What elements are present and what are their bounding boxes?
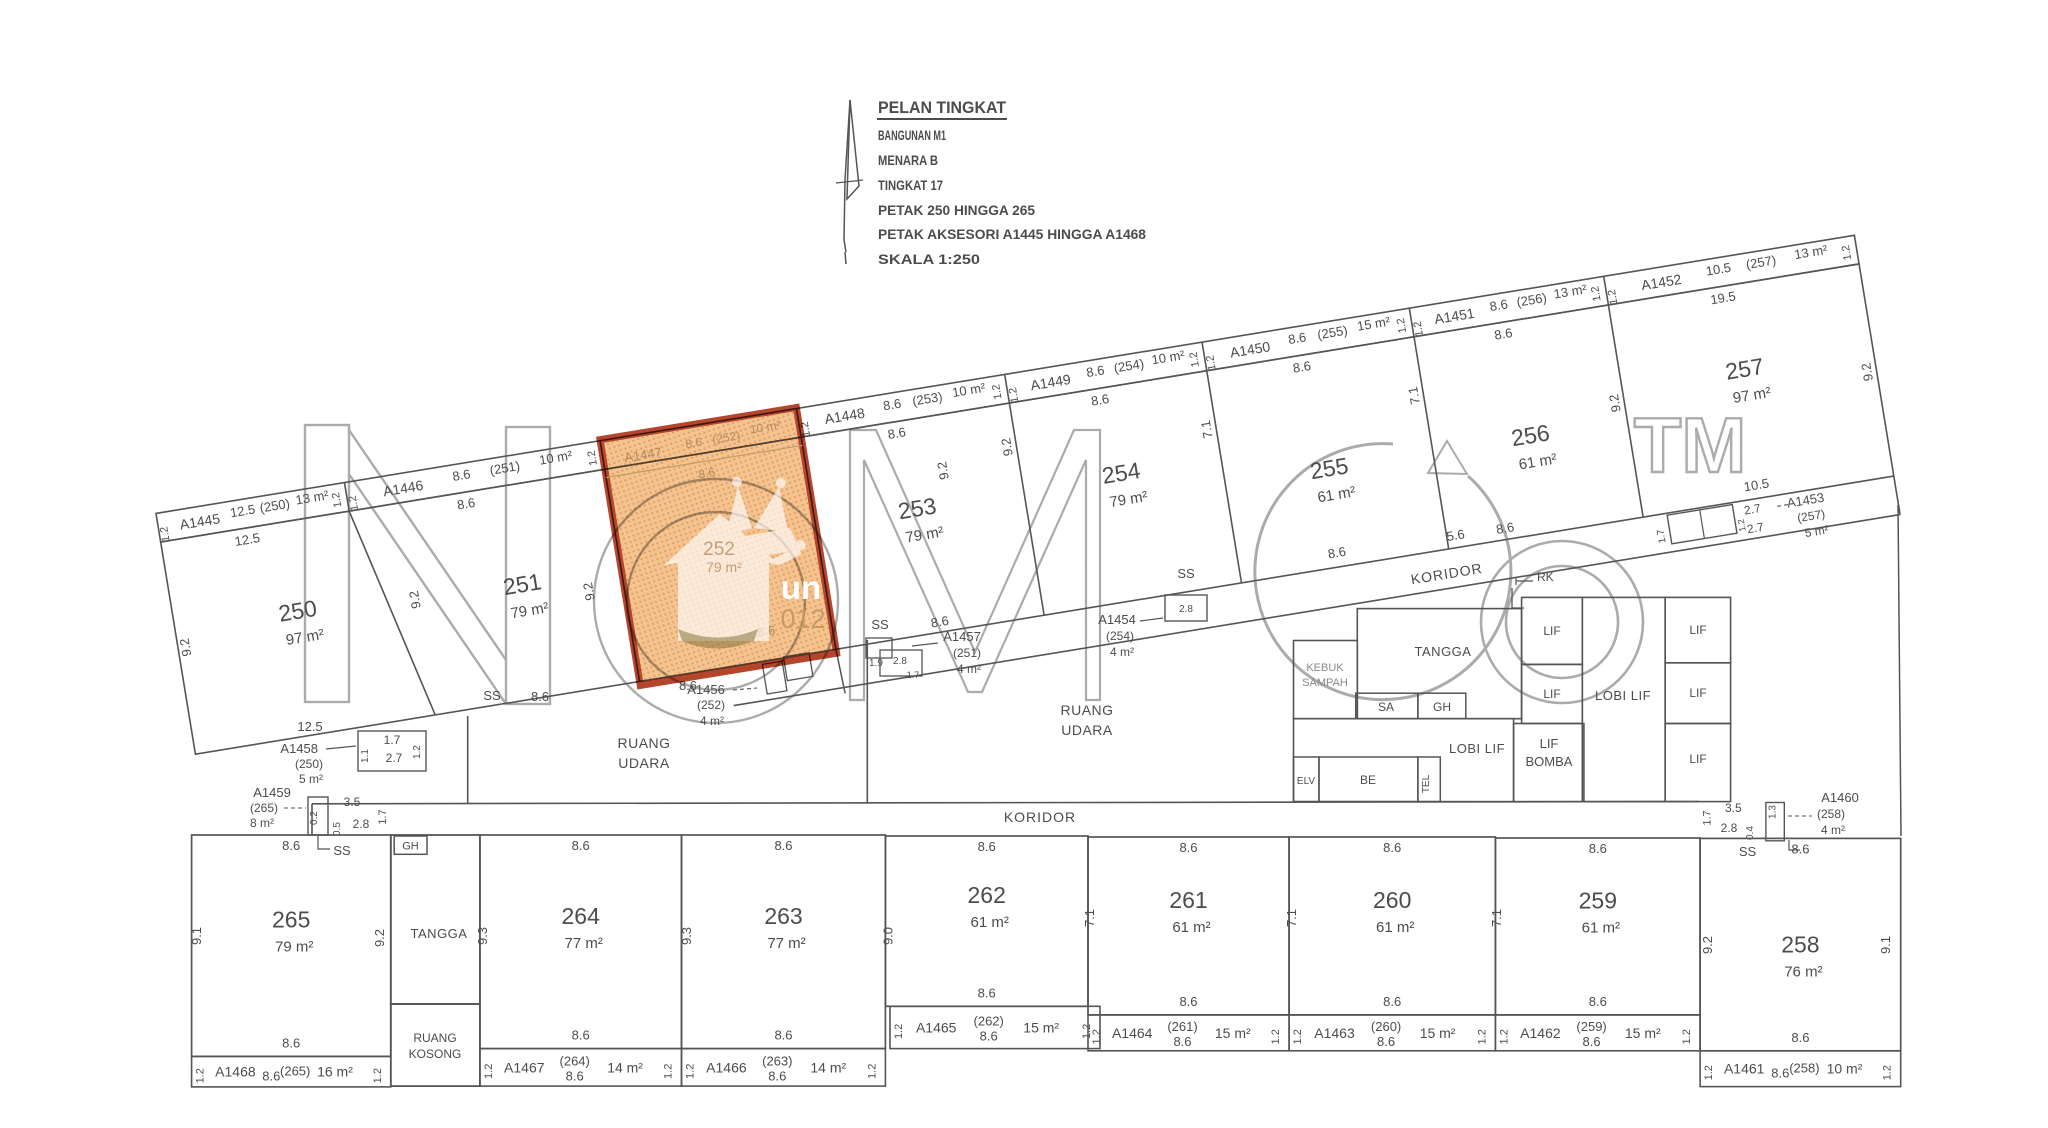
svg-text:LIF: LIF bbox=[1540, 736, 1559, 751]
svg-text:A1458: A1458 bbox=[280, 741, 318, 756]
svg-text:15 m²: 15 m² bbox=[1215, 1025, 1251, 1041]
svg-text:258: 258 bbox=[1781, 932, 1819, 958]
svg-text:8.6: 8.6 bbox=[1771, 1066, 1789, 1081]
svg-text:16 m²: 16 m² bbox=[317, 1064, 353, 1080]
svg-text:8.6: 8.6 bbox=[697, 465, 716, 482]
svg-text:7.1: 7.1 bbox=[1082, 909, 1097, 927]
svg-text:1.7: 1.7 bbox=[1655, 528, 1668, 544]
svg-text:1.2: 1.2 bbox=[1188, 351, 1202, 368]
svg-text:1.2: 1.2 bbox=[1204, 354, 1218, 371]
svg-text:15 m²: 15 m² bbox=[1420, 1025, 1456, 1041]
svg-text:1.7: 1.7 bbox=[377, 809, 389, 824]
svg-text:8.6: 8.6 bbox=[1495, 519, 1515, 537]
svg-text:0.4: 0.4 bbox=[1745, 826, 1756, 840]
svg-text:1.2: 1.2 bbox=[1882, 1065, 1894, 1080]
svg-text:A1461: A1461 bbox=[1724, 1061, 1765, 1077]
svg-text:8.6: 8.6 bbox=[978, 985, 996, 1000]
svg-text:2.8: 2.8 bbox=[1721, 821, 1738, 835]
svg-text:A1457: A1457 bbox=[943, 629, 981, 644]
svg-text:8.6: 8.6 bbox=[1085, 362, 1105, 380]
svg-text:TM: TM bbox=[1634, 401, 1747, 489]
svg-text:A1463: A1463 bbox=[1314, 1025, 1355, 1041]
svg-text:KORIDOR: KORIDOR bbox=[1004, 809, 1076, 825]
svg-text:8.6: 8.6 bbox=[1489, 296, 1509, 314]
svg-text:8.6: 8.6 bbox=[282, 838, 300, 853]
svg-text:BANGUNAN M1: BANGUNAN M1 bbox=[878, 127, 946, 143]
svg-text:(265): (265) bbox=[250, 801, 278, 815]
svg-text:1.2: 1.2 bbox=[866, 1064, 878, 1079]
svg-text:3.5: 3.5 bbox=[344, 795, 361, 809]
svg-text:8.6: 8.6 bbox=[531, 689, 549, 704]
svg-text:1.2: 1.2 bbox=[483, 1064, 495, 1079]
svg-text:1.2: 1.2 bbox=[1270, 1029, 1282, 1044]
svg-text:(258): (258) bbox=[1789, 1061, 1819, 1076]
svg-text:1.2: 1.2 bbox=[1606, 289, 1620, 306]
svg-text:8.6: 8.6 bbox=[1090, 391, 1110, 409]
svg-text:SS: SS bbox=[871, 617, 889, 632]
svg-text:9.0: 9.0 bbox=[881, 927, 896, 945]
svg-text:14 m²: 14 m² bbox=[607, 1059, 643, 1075]
svg-text:A1466: A1466 bbox=[706, 1059, 747, 1075]
svg-text:A1468: A1468 bbox=[215, 1064, 256, 1080]
svg-text:4 m²: 4 m² bbox=[957, 662, 981, 676]
svg-text:7.1: 7.1 bbox=[1284, 909, 1299, 927]
svg-text:8.6: 8.6 bbox=[1173, 1034, 1191, 1049]
svg-text:1.2: 1.2 bbox=[372, 1068, 384, 1083]
svg-text:8.6: 8.6 bbox=[262, 1069, 280, 1084]
svg-text:(262): (262) bbox=[974, 1013, 1004, 1028]
svg-text:0.2: 0.2 bbox=[309, 811, 320, 825]
svg-text:76 m²: 76 m² bbox=[1784, 964, 1822, 981]
svg-text:SKALA 1:250: SKALA 1:250 bbox=[878, 251, 980, 267]
svg-text:8.6: 8.6 bbox=[1179, 994, 1197, 1009]
svg-text:1.2: 1.2 bbox=[158, 526, 172, 543]
svg-text:012: 012 bbox=[780, 604, 825, 634]
svg-text:8.6: 8.6 bbox=[572, 1028, 590, 1043]
svg-text:PELAN TINGKAT: PELAN TINGKAT bbox=[878, 99, 1006, 117]
svg-text:LOBI LIF: LOBI LIF bbox=[1595, 688, 1651, 703]
svg-text:15 m²: 15 m² bbox=[1023, 1019, 1059, 1035]
svg-text:1.7: 1.7 bbox=[1702, 810, 1714, 825]
svg-text:12.5: 12.5 bbox=[297, 719, 322, 734]
svg-text:LIF: LIF bbox=[1689, 752, 1706, 766]
svg-text:8.6: 8.6 bbox=[1791, 841, 1809, 856]
svg-text:8.6: 8.6 bbox=[572, 838, 590, 853]
svg-text:263: 263 bbox=[764, 903, 802, 929]
svg-text:2.7: 2.7 bbox=[386, 751, 403, 765]
svg-text:A1454: A1454 bbox=[1098, 612, 1136, 627]
svg-text:252: 252 bbox=[703, 539, 735, 560]
svg-text:264: 264 bbox=[562, 903, 601, 929]
svg-text:SS: SS bbox=[1739, 844, 1757, 859]
svg-text:(260): (260) bbox=[1371, 1019, 1401, 1034]
svg-text:265: 265 bbox=[272, 907, 310, 933]
svg-text:1.2: 1.2 bbox=[990, 383, 1004, 400]
svg-text:(259): (259) bbox=[1576, 1019, 1606, 1034]
svg-text:1.2: 1.2 bbox=[1476, 1029, 1488, 1044]
svg-text:A1467: A1467 bbox=[504, 1059, 545, 1075]
svg-text:A1464: A1464 bbox=[1112, 1025, 1153, 1041]
svg-text:1.2: 1.2 bbox=[685, 1064, 697, 1079]
svg-text:RK: RK bbox=[1537, 570, 1554, 584]
svg-text:261: 261 bbox=[1169, 887, 1207, 913]
svg-text:8.6: 8.6 bbox=[451, 466, 471, 484]
svg-text:7.1: 7.1 bbox=[1489, 909, 1504, 927]
svg-text:9.2: 9.2 bbox=[1858, 362, 1876, 382]
svg-text:8.6: 8.6 bbox=[930, 613, 950, 631]
svg-text:1.2: 1.2 bbox=[1736, 518, 1748, 532]
svg-text:UDARA: UDARA bbox=[1061, 722, 1113, 738]
svg-text:77 m²: 77 m² bbox=[565, 935, 603, 952]
svg-text:(264): (264) bbox=[560, 1053, 590, 1068]
svg-text:1.2: 1.2 bbox=[1840, 244, 1854, 261]
svg-text:8.6: 8.6 bbox=[1383, 994, 1401, 1009]
svg-text:4 m²: 4 m² bbox=[700, 714, 724, 728]
svg-text:2.8: 2.8 bbox=[353, 817, 370, 831]
svg-text:PETAK AKSESORI A1445 HINGGA A1: PETAK AKSESORI A1445 HINGGA A1468 bbox=[878, 226, 1146, 242]
svg-text:8.6: 8.6 bbox=[1287, 329, 1307, 347]
svg-text:5 m²: 5 m² bbox=[299, 772, 323, 786]
svg-text:79 m²: 79 m² bbox=[706, 559, 742, 575]
svg-text:LIF: LIF bbox=[1689, 623, 1706, 637]
svg-text:260: 260 bbox=[1373, 887, 1411, 913]
svg-text:61 m²: 61 m² bbox=[1172, 919, 1210, 936]
svg-text:1.7: 1.7 bbox=[907, 670, 920, 680]
svg-text:1.2: 1.2 bbox=[1681, 1029, 1693, 1044]
svg-text:8.6: 8.6 bbox=[1589, 841, 1607, 856]
svg-text:TANGGA: TANGGA bbox=[1415, 644, 1472, 659]
svg-text:(261): (261) bbox=[1167, 1019, 1197, 1034]
svg-text:1.1: 1.1 bbox=[360, 749, 371, 763]
svg-text:14 m²: 14 m² bbox=[810, 1059, 846, 1075]
svg-text:8.6: 8.6 bbox=[282, 1035, 300, 1050]
svg-text:SA: SA bbox=[1378, 700, 1394, 714]
svg-text:SS: SS bbox=[333, 843, 351, 858]
svg-text:LIF: LIF bbox=[1543, 624, 1560, 638]
svg-text:8.6: 8.6 bbox=[456, 495, 476, 513]
svg-text:9.1: 9.1 bbox=[189, 927, 204, 945]
svg-text:(265): (265) bbox=[280, 1064, 310, 1079]
svg-text:SAMPAH: SAMPAH bbox=[1302, 677, 1348, 689]
svg-text:1.2: 1.2 bbox=[195, 1068, 207, 1083]
svg-text:2.7: 2.7 bbox=[1746, 520, 1765, 537]
svg-text:1.2: 1.2 bbox=[586, 450, 600, 467]
svg-text:(250): (250) bbox=[295, 757, 323, 771]
svg-text:1.2: 1.2 bbox=[1498, 1029, 1510, 1044]
svg-text:1.2: 1.2 bbox=[1091, 1029, 1103, 1044]
svg-text:79 m²: 79 m² bbox=[275, 939, 313, 956]
svg-text:8.6: 8.6 bbox=[774, 838, 792, 853]
svg-text:77 m²: 77 m² bbox=[767, 935, 805, 952]
svg-text:1.9: 1.9 bbox=[869, 658, 883, 669]
svg-text:BOMBA: BOMBA bbox=[1526, 754, 1573, 769]
svg-text:TINGKAT 17: TINGKAT 17 bbox=[878, 177, 943, 193]
svg-text:9.2: 9.2 bbox=[1606, 393, 1624, 413]
svg-text:BE: BE bbox=[1360, 773, 1376, 787]
svg-text:9.2: 9.2 bbox=[934, 461, 952, 481]
svg-text:1.2: 1.2 bbox=[347, 495, 361, 512]
svg-text:1.2: 1.2 bbox=[1395, 317, 1409, 334]
svg-text:10 m²: 10 m² bbox=[1827, 1061, 1863, 1077]
svg-text:8.6: 8.6 bbox=[1583, 1034, 1601, 1049]
svg-text:SS: SS bbox=[1177, 566, 1195, 581]
svg-text:(251): (251) bbox=[953, 646, 981, 660]
svg-text:1.7: 1.7 bbox=[384, 733, 401, 747]
svg-text:15 m²: 15 m² bbox=[1625, 1025, 1661, 1041]
svg-text:8.6: 8.6 bbox=[566, 1068, 584, 1083]
svg-text:8.6: 8.6 bbox=[1589, 994, 1607, 1009]
svg-text:LOBI LIF: LOBI LIF bbox=[1449, 741, 1505, 756]
svg-text:1.2: 1.2 bbox=[1292, 1029, 1304, 1044]
svg-text:(258): (258) bbox=[1817, 807, 1845, 821]
svg-text:8.6: 8.6 bbox=[980, 1028, 998, 1043]
svg-text:A1462: A1462 bbox=[1520, 1025, 1561, 1041]
svg-text:9.2: 9.2 bbox=[372, 929, 387, 947]
svg-text:9.1: 9.1 bbox=[1878, 936, 1893, 954]
svg-text:8 m²: 8 m² bbox=[250, 816, 274, 830]
svg-text:1.2: 1.2 bbox=[330, 491, 344, 508]
svg-text:KEBUK: KEBUK bbox=[1306, 662, 1344, 674]
svg-text:262: 262 bbox=[968, 882, 1006, 908]
svg-text:A1459: A1459 bbox=[253, 785, 291, 800]
svg-text:61 m²: 61 m² bbox=[971, 914, 1009, 931]
svg-text:4 m²: 4 m² bbox=[1110, 645, 1134, 659]
svg-text:un: un bbox=[781, 569, 821, 606]
svg-text:A1460: A1460 bbox=[1821, 790, 1859, 805]
svg-text:4 m²: 4 m² bbox=[1821, 823, 1845, 837]
svg-text:9.2: 9.2 bbox=[998, 437, 1016, 457]
svg-text:A1465: A1465 bbox=[916, 1019, 957, 1035]
svg-text:8.6: 8.6 bbox=[1327, 544, 1347, 562]
svg-text:1.2: 1.2 bbox=[663, 1064, 675, 1079]
svg-text:LIF: LIF bbox=[1689, 686, 1706, 700]
svg-text:8.6: 8.6 bbox=[1493, 325, 1513, 343]
svg-text:(252): (252) bbox=[697, 698, 725, 712]
svg-text:TEL: TEL bbox=[1421, 774, 1432, 793]
svg-text:1.2: 1.2 bbox=[1703, 1065, 1715, 1080]
svg-text:PETAK 250 HINGGA 265: PETAK 250 HINGGA 265 bbox=[878, 202, 1035, 218]
svg-text:(263): (263) bbox=[762, 1053, 792, 1068]
svg-text:8.6: 8.6 bbox=[1377, 1034, 1395, 1049]
svg-text:2.8: 2.8 bbox=[893, 656, 907, 667]
svg-text:8.6: 8.6 bbox=[887, 424, 907, 442]
svg-text:1.2: 1.2 bbox=[412, 745, 423, 759]
svg-text:1.2: 1.2 bbox=[1412, 320, 1426, 337]
svg-text:KOSONG: KOSONG bbox=[409, 1047, 462, 1061]
svg-text:9.3: 9.3 bbox=[475, 927, 490, 945]
svg-text:5.6: 5.6 bbox=[1445, 526, 1465, 544]
svg-text:1.2: 1.2 bbox=[1007, 387, 1021, 404]
svg-text:8.6: 8.6 bbox=[1179, 840, 1197, 855]
svg-text:7.1: 7.1 bbox=[1198, 419, 1216, 439]
svg-text:9.2: 9.2 bbox=[1700, 936, 1715, 954]
svg-text:8.6: 8.6 bbox=[768, 1068, 786, 1083]
svg-text:TANGGA: TANGGA bbox=[411, 926, 468, 941]
svg-text:8.6: 8.6 bbox=[774, 1028, 792, 1043]
svg-text:61 m²: 61 m² bbox=[1376, 919, 1414, 936]
svg-text:7.1: 7.1 bbox=[1405, 385, 1423, 405]
svg-text:0.5: 0.5 bbox=[332, 822, 343, 836]
svg-text:LIF: LIF bbox=[1543, 687, 1560, 701]
svg-text:RUANG: RUANG bbox=[617, 735, 670, 751]
svg-text:9.2: 9.2 bbox=[406, 590, 424, 610]
svg-text:8.6: 8.6 bbox=[1292, 358, 1312, 376]
svg-text:3.5: 3.5 bbox=[1725, 801, 1742, 815]
svg-text:61 m²: 61 m² bbox=[1582, 920, 1620, 937]
svg-text:UDARA: UDARA bbox=[618, 755, 670, 771]
svg-text:ELV: ELV bbox=[1297, 776, 1315, 787]
svg-text:259: 259 bbox=[1579, 888, 1617, 914]
svg-text:9.2: 9.2 bbox=[580, 581, 598, 601]
svg-text:GH: GH bbox=[1433, 700, 1451, 714]
svg-text:2.7: 2.7 bbox=[1743, 501, 1762, 518]
svg-text:(254): (254) bbox=[1106, 629, 1134, 643]
svg-text:SS: SS bbox=[483, 688, 501, 703]
svg-text:8.6: 8.6 bbox=[1383, 840, 1401, 855]
svg-text:RUANG: RUANG bbox=[1060, 702, 1113, 718]
svg-text:1.3: 1.3 bbox=[1767, 805, 1778, 819]
svg-text:8.6: 8.6 bbox=[882, 396, 902, 414]
svg-text:1.2: 1.2 bbox=[893, 1024, 905, 1039]
svg-text:8.6: 8.6 bbox=[1791, 1030, 1809, 1045]
svg-text:MENARA B: MENARA B bbox=[878, 152, 938, 168]
svg-text:8.6: 8.6 bbox=[978, 839, 996, 854]
svg-text:9.2: 9.2 bbox=[177, 637, 195, 657]
svg-text:9.3: 9.3 bbox=[679, 927, 694, 945]
svg-text:GH: GH bbox=[402, 841, 419, 853]
svg-text:2.8: 2.8 bbox=[1179, 604, 1193, 615]
svg-text:8.6: 8.6 bbox=[684, 435, 703, 452]
svg-text:RUANG: RUANG bbox=[413, 1031, 456, 1045]
svg-text:1.2: 1.2 bbox=[1589, 285, 1603, 302]
